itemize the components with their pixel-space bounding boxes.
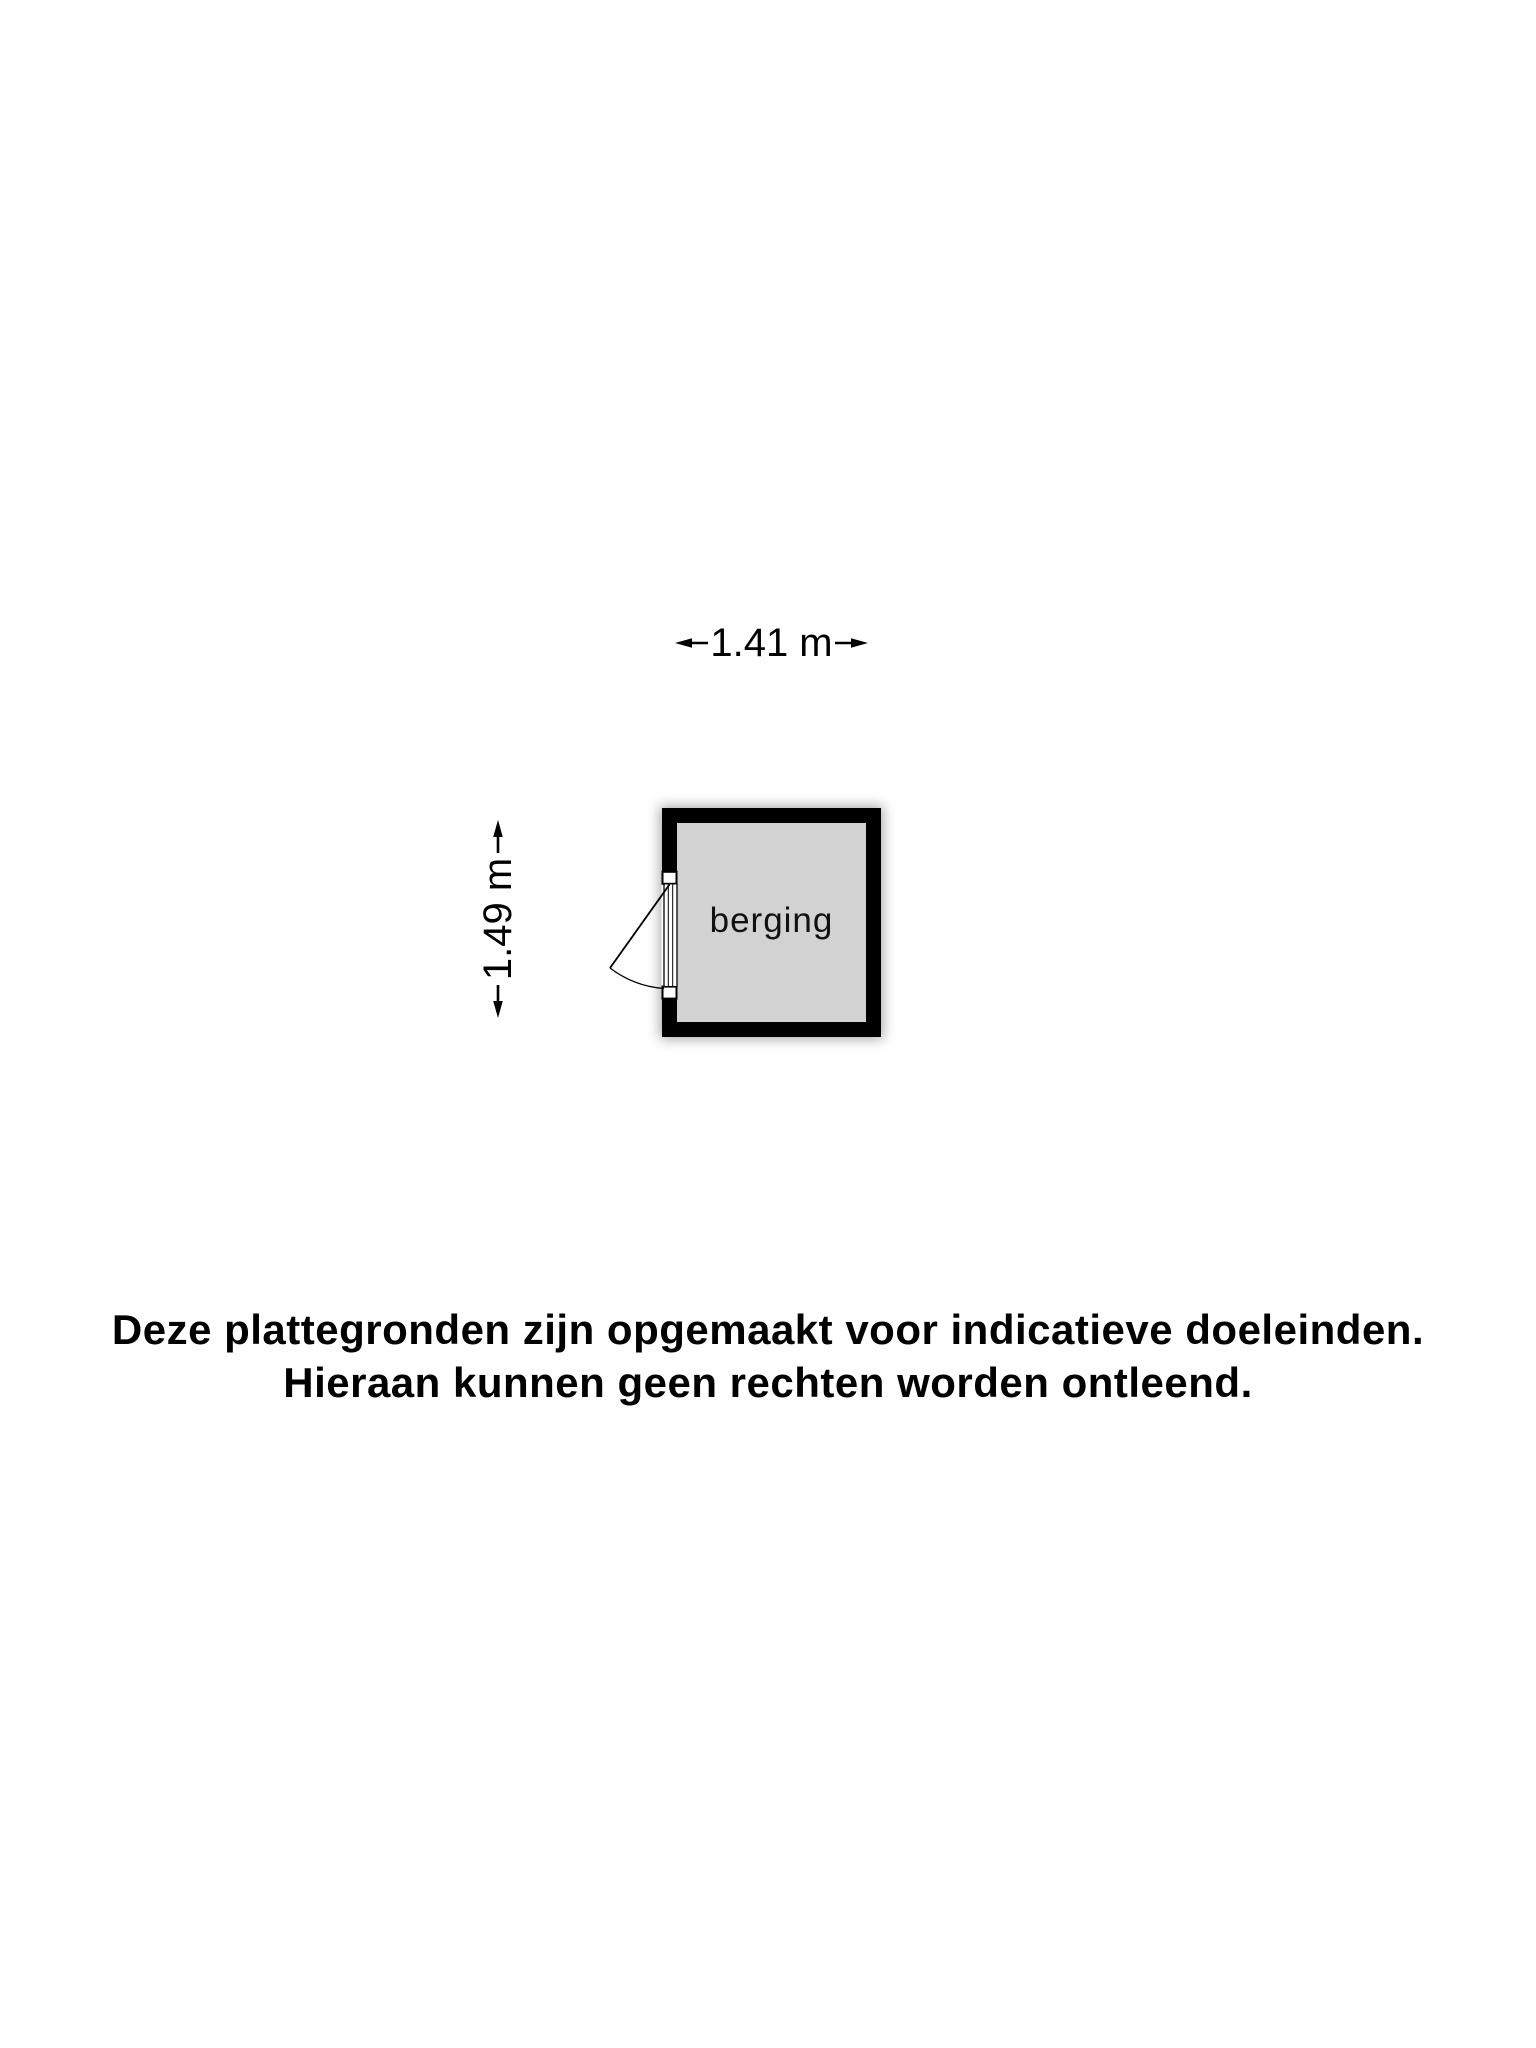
height-dimension-label: 1.49 m (478, 858, 518, 980)
height-dimension: 1.49 m (478, 820, 518, 1018)
door-leaf-open-line (610, 885, 670, 969)
dim-arrow-up-icon (492, 820, 504, 853)
disclaimer-line-2: Hieraan kunnen geen rechten worden ontle… (0, 1356, 1536, 1409)
width-dimension-label: 1.41 m (710, 623, 832, 663)
door-leaf-band (664, 884, 677, 987)
dim-arrow-right-icon (835, 637, 868, 649)
dim-arrow-left-icon (675, 637, 708, 649)
door-jamb-bottom (663, 987, 677, 999)
dim-arrow-down-icon (492, 985, 504, 1018)
room-floor: berging (677, 823, 866, 1022)
disclaimer: Deze plattegronden zijn opgemaakt voor i… (0, 1303, 1536, 1409)
door-swing-arc (610, 968, 664, 989)
door-swing-icon (560, 850, 700, 1020)
floorplan-page: 1.41 m 1.49 m berging (0, 0, 1536, 2048)
disclaimer-line-1: Deze plattegronden zijn opgemaakt voor i… (0, 1303, 1536, 1356)
door-jamb-top (663, 872, 677, 884)
width-dimension: 1.41 m (675, 622, 868, 664)
room-label: berging (710, 903, 834, 942)
